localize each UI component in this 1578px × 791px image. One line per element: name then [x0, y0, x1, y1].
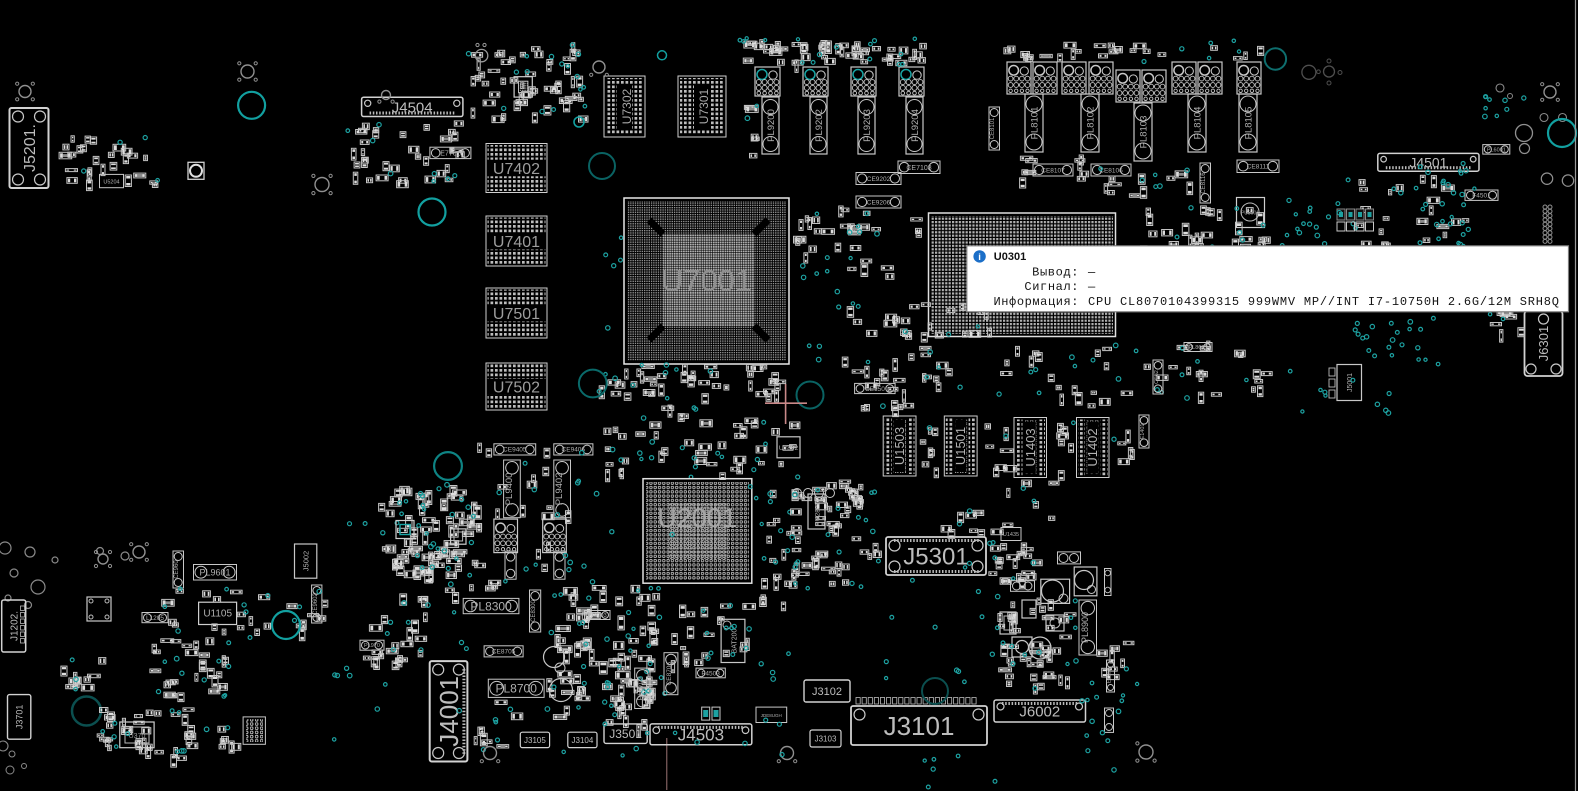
- svg-text:U5204: U5204: [103, 180, 119, 186]
- svg-text:U7001: U7001: [661, 263, 752, 298]
- svg-text:J3501: J3501: [609, 727, 642, 741]
- svg-text:BAT200: BAT200: [732, 629, 739, 654]
- svg-text:PL8102: PL8102: [1086, 107, 1097, 140]
- svg-text:J6002: J6002: [1019, 703, 1060, 720]
- svg-text:CE8111: CE8111: [1247, 164, 1270, 171]
- svg-text:J4501: J4501: [1409, 154, 1447, 170]
- svg-text:PL8103: PL8103: [1139, 116, 1150, 149]
- svg-text:CE9202: CE9202: [867, 176, 891, 183]
- svg-text:J5201.: J5201.: [22, 124, 39, 172]
- svg-text:CE7108: CE7108: [906, 165, 931, 172]
- svg-text:PL9202: PL9202: [814, 109, 825, 142]
- svg-text:U1402: U1402: [1085, 428, 1100, 466]
- svg-text:J3102: J3102: [812, 686, 842, 698]
- svg-text:CE9206: CE9206: [867, 199, 891, 206]
- svg-text:CE8107: CE8107: [1041, 167, 1065, 174]
- svg-text:J3104: J3104: [572, 736, 594, 745]
- svg-text:J3701: J3701: [14, 705, 24, 730]
- svg-text:L1205: L1205: [146, 615, 164, 622]
- svg-text:U7802: U7802: [779, 445, 799, 452]
- svg-text:CE9405: CE9405: [503, 447, 527, 454]
- svg-text:PL8601: PL8601: [1189, 345, 1208, 351]
- svg-text:PL8105: PL8105: [1244, 107, 1255, 140]
- svg-text:J3103: J3103: [815, 734, 837, 743]
- svg-text:PL970: PL970: [364, 643, 380, 649]
- svg-text:U2001: U2001: [657, 503, 737, 533]
- svg-text:U7402: U7402: [493, 161, 540, 178]
- svg-text:PL9601: PL9601: [199, 568, 230, 578]
- svg-text:CE8116: CE8116: [1201, 172, 1207, 194]
- svg-text:CE8101: CE8101: [990, 117, 996, 139]
- svg-text:CE82: CE82: [1154, 370, 1160, 384]
- svg-text:J1202.: J1202.: [9, 611, 20, 641]
- svg-text:J5301: J5301: [903, 544, 968, 571]
- svg-text:U1105: U1105: [203, 609, 232, 620]
- svg-text:J3101: J3101: [884, 711, 955, 741]
- svg-text:CE150: CE150: [865, 386, 885, 393]
- svg-text:PL6001: PL6001: [1487, 147, 1506, 153]
- svg-text:Информация:: Информация:: [994, 295, 1079, 309]
- svg-text:E7701: E7701: [440, 150, 460, 157]
- svg-text:U7301: U7301: [697, 89, 711, 125]
- svg-text:—: —: [1087, 265, 1096, 279]
- svg-text:PL9402: PL9402: [554, 473, 565, 506]
- svg-text:PL9200: PL9200: [766, 109, 777, 142]
- svg-text:PL8700: PL8700: [496, 682, 538, 696]
- svg-text:CE960: CE960: [174, 560, 180, 579]
- svg-text:U7501: U7501: [493, 306, 540, 323]
- svg-text:CE8300: CE8300: [531, 599, 537, 621]
- svg-text:J4001: J4001: [434, 676, 464, 747]
- svg-text:PL8900: PL8900: [1080, 612, 1090, 643]
- svg-text:PL9703: PL9703: [588, 613, 607, 619]
- svg-text:i: i: [978, 252, 981, 263]
- svg-text:E1401: E1401: [1140, 424, 1146, 440]
- svg-text:PL9204: PL9204: [910, 109, 921, 142]
- svg-text:U7502: U7502: [493, 379, 540, 396]
- svg-text:J3105: J3105: [524, 736, 546, 745]
- svg-text:J4503: J4503: [678, 726, 724, 745]
- svg-text:J6301: J6301: [1536, 326, 1551, 361]
- svg-text:CPU CL8070104399315 999WMV MP/: CPU CL8070104399315 999WMV MP//INT I7-10…: [1088, 295, 1559, 309]
- svg-text:PL8101: PL8101: [1030, 107, 1041, 140]
- svg-text:U1503: U1503: [892, 427, 907, 465]
- svg-text:Вывод:: Вывод:: [1032, 265, 1078, 279]
- svg-text:F4503: F4503: [701, 670, 720, 677]
- svg-text:PL8702: PL8702: [637, 676, 644, 700]
- svg-text:U0301: U0301: [994, 251, 1026, 263]
- svg-text:JDE8UGH: JDE8UGH: [761, 713, 782, 718]
- svg-text:U1403: U1403: [1023, 428, 1038, 466]
- svg-text:U1435: U1435: [1003, 532, 1019, 538]
- svg-text:CE8706: CE8706: [666, 662, 673, 686]
- svg-text:—: —: [1087, 280, 1096, 294]
- svg-text:J5002: J5002: [302, 551, 311, 571]
- svg-text:J4504: J4504: [392, 99, 433, 116]
- svg-text:PL8300: PL8300: [470, 599, 512, 613]
- svg-text:CE8705: CE8705: [492, 649, 516, 656]
- svg-text:PL8104: PL8104: [1193, 107, 1204, 140]
- svg-text:F4501: F4501: [1472, 193, 1491, 200]
- svg-text:U7302: U7302: [620, 89, 634, 125]
- svg-text:Сигнал:: Сигнал:: [1024, 280, 1078, 294]
- svg-text:U7401: U7401: [493, 234, 540, 251]
- svg-text:PL9203: PL9203: [862, 109, 873, 142]
- svg-text:U1501: U1501: [953, 427, 968, 465]
- svg-text:CE9602: CE9602: [313, 592, 319, 614]
